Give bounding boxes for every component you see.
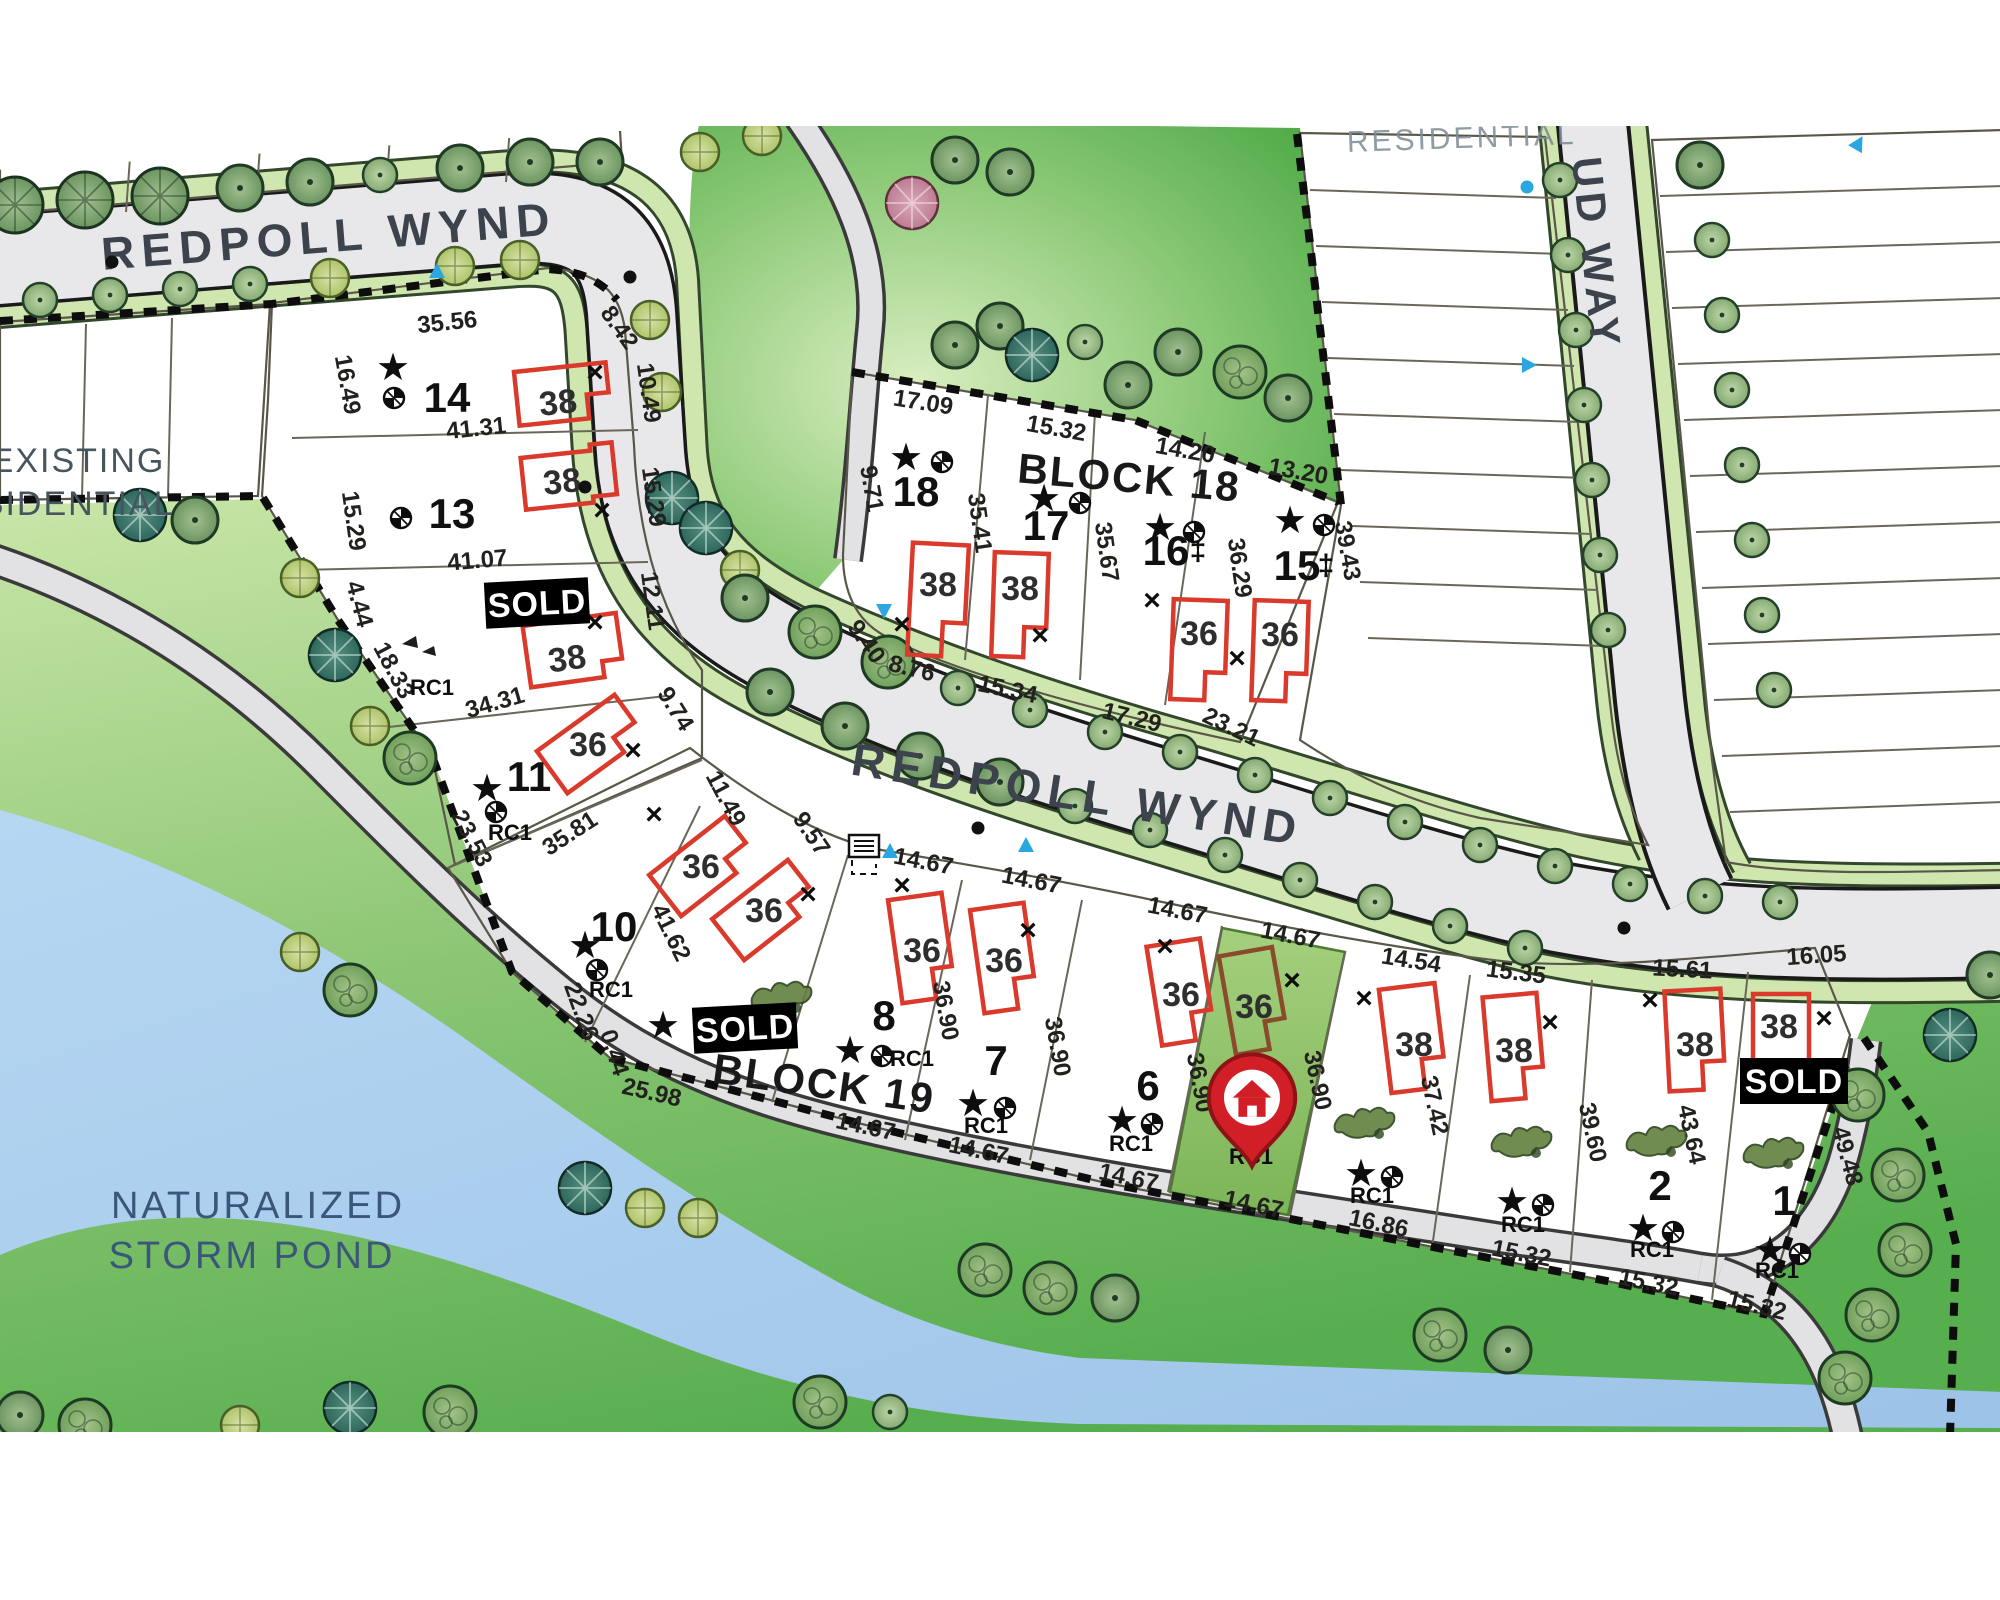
tree-icon [559, 1162, 611, 1214]
house-model: 38 [1760, 1008, 1798, 1046]
dim: 16.05 [1786, 940, 1848, 971]
house-model: 36 [1180, 615, 1218, 653]
benchmark-icon [1314, 515, 1334, 535]
tree-icon [57, 172, 113, 228]
scribble-icon [1744, 1138, 1804, 1169]
sold-badge-lot-12: SOLD [484, 577, 590, 628]
lot-number: 11 [507, 753, 551, 800]
zoning-label: RC1 [589, 977, 633, 1002]
tree-icon [722, 575, 768, 621]
lot-number: 13 [429, 490, 476, 537]
tree-icon [1879, 1224, 1931, 1276]
zoning-label: RC1 [410, 675, 454, 700]
tree-icon [507, 139, 553, 185]
lot-number: 6 [1136, 1062, 1159, 1109]
tree-icon [1006, 329, 1058, 381]
tree-icon [681, 133, 719, 171]
tree-icon [324, 1382, 376, 1434]
tree-icon [1024, 1262, 1076, 1314]
dim: 16.49 [329, 353, 366, 417]
pond-label-1: NATURALIZED [111, 1185, 405, 1227]
zoning-label: RC1 [890, 1046, 934, 1071]
dim: 35.67 [1089, 520, 1124, 583]
dim: 41.07 [446, 544, 508, 576]
tree-icon [1575, 463, 1609, 497]
tree-icon [384, 732, 436, 784]
lot-number: 15 [1274, 542, 1321, 589]
x-mark-icon: × [1815, 1002, 1833, 1035]
tree-icon [1283, 863, 1317, 897]
tree-icon [217, 165, 263, 211]
dim: 34.31 [462, 682, 527, 725]
tree-icon [941, 671, 975, 705]
tree-icon [23, 283, 57, 317]
tree-icon [1567, 388, 1601, 422]
tree-icon [1433, 909, 1467, 943]
tree-icon [1819, 1352, 1871, 1404]
zoning-label: RC1 [1109, 1131, 1153, 1156]
house-model: 36 [682, 848, 720, 886]
tree-icon [1163, 735, 1197, 769]
tree-icon [1313, 781, 1347, 815]
tree-icon [1725, 448, 1759, 482]
house-model: 38 [546, 638, 589, 681]
tree-icon [1092, 1275, 1138, 1321]
lot-number: 14 [424, 374, 471, 421]
tree-icon [747, 669, 793, 715]
tree-icon [1715, 373, 1749, 407]
star-icon: ★ [376, 347, 410, 389]
x-mark-icon: × [645, 798, 663, 831]
tree-icon [1105, 362, 1151, 408]
tree-icon [1068, 325, 1102, 359]
tree-icon [1591, 613, 1625, 647]
x-mark-icon: × [799, 878, 817, 911]
tree-icon [680, 502, 732, 554]
dim: 37.42 [1415, 1073, 1454, 1137]
zoning-label: RC1 [488, 820, 532, 845]
tree-icon [1414, 1309, 1466, 1361]
tree-icon [1688, 879, 1722, 913]
benchmark-icon [391, 508, 411, 528]
dim: 9.74 [652, 682, 700, 736]
x-mark-icon: × [1641, 984, 1659, 1017]
house-model: 38 [537, 382, 579, 424]
star-icon: ★ [646, 1005, 680, 1047]
dim: 4.44 [340, 578, 378, 631]
sold-label: SOLD [695, 1007, 795, 1050]
zoning-label: RC1 [1755, 1258, 1799, 1283]
dim: 15.32 [1024, 410, 1088, 447]
x-mark-icon: × [1019, 914, 1037, 947]
lot-number: 8 [872, 992, 895, 1039]
survey-tick-icons [402, 636, 436, 656]
house-model: 36 [745, 892, 783, 930]
house-model: 38 [1676, 1026, 1714, 1064]
house-model: 36 [1261, 616, 1299, 654]
tree-icon [1745, 598, 1779, 632]
lot-number: 2 [1648, 1162, 1671, 1209]
tree-icon [1214, 346, 1266, 398]
benchmark-icon [486, 802, 506, 822]
tree-icon [351, 707, 389, 745]
pink-tree-icon [886, 177, 938, 229]
survey-dot-icon [972, 822, 985, 835]
site-plan-map: 38 38 38 36 36 36 38 38 36 36 36 36 36 3… [0, 0, 2000, 1600]
tree-icon [1872, 1149, 1924, 1201]
zoning-label: RC1 [964, 1113, 1008, 1138]
house-model: 36 [569, 726, 607, 764]
house-model: 38 [1495, 1032, 1533, 1070]
star-icon: ★ [1027, 478, 1061, 520]
benchmark-icon [932, 452, 952, 472]
survey-dot-icon [579, 481, 592, 494]
utility-dot-icon [1521, 181, 1534, 194]
tree-icon [1846, 1289, 1898, 1341]
sold-label: SOLD [1745, 1063, 1843, 1101]
scribble-icon [1492, 1127, 1552, 1158]
tree-icon [679, 1199, 717, 1237]
lot-number: 7 [984, 1037, 1007, 1084]
scribble-icon [1335, 1108, 1395, 1139]
dim: 17.09 [891, 385, 955, 421]
house-model: 36 [985, 942, 1023, 980]
x-mark-icon: × [893, 608, 911, 641]
benchmark-icon [1070, 493, 1090, 513]
tree-icon [324, 964, 376, 1016]
star-icon: ★ [833, 1030, 867, 1072]
zoning-label: RC1 [1501, 1212, 1545, 1237]
tree-icon [233, 267, 267, 301]
house-model: 38 [541, 461, 583, 503]
tree-icon [309, 629, 361, 681]
utility-triangle-icon [1018, 837, 1034, 852]
tree-icon [281, 933, 319, 971]
x-mark-icon: × [1156, 930, 1174, 963]
dim: 36.90 [1039, 1015, 1076, 1079]
dim: 41.31 [445, 412, 508, 445]
tree-icon [1613, 867, 1647, 901]
transit-stop-icon [849, 835, 879, 874]
lot-number: 1 [1772, 1177, 1795, 1224]
house-model: 36 [1235, 988, 1273, 1026]
dim: 15.29 [336, 489, 371, 552]
x-mark-icon: × [624, 734, 642, 767]
survey-dot-icon [624, 271, 637, 284]
star-icon: ★ [889, 437, 923, 479]
tree-icon [794, 1376, 846, 1428]
house-model: 38 [919, 566, 957, 604]
x-mark-icon: × [1355, 982, 1373, 1015]
tree-icon [1735, 523, 1769, 557]
sold-label: SOLD [487, 582, 587, 625]
tree-icon [287, 159, 333, 205]
tree-icon [93, 278, 127, 312]
utility-triangle-icon [1522, 357, 1537, 373]
tree-icon [789, 606, 841, 658]
tree-icon [1265, 375, 1311, 421]
tree-icon [1677, 142, 1723, 188]
house-model: 36 [903, 932, 941, 970]
zoning-label: RC1 [1630, 1237, 1674, 1262]
survey-dot-icon [106, 256, 119, 269]
house-model: 36 [1162, 976, 1200, 1014]
sold-badge-lot-1: SOLD [1740, 1058, 1848, 1104]
tree-icon [1763, 885, 1797, 919]
dim: 35.56 [416, 306, 479, 339]
x-mark-icon: × [593, 494, 611, 527]
tree-icon [0, 177, 43, 233]
tree-icon [163, 272, 197, 306]
tree-icon [437, 145, 483, 191]
tree-icon [873, 1395, 907, 1429]
tree-icon [932, 137, 978, 183]
tree-icon [1695, 223, 1729, 257]
dim: 11.49 [700, 766, 751, 831]
benchmark-icon [1184, 522, 1204, 542]
tree-icon [0, 1392, 43, 1438]
survey-dot-icon [1618, 922, 1631, 935]
tree-icon [1238, 758, 1272, 792]
tree-icon [311, 259, 349, 297]
sold-badge-lot-9: SOLD [692, 1002, 798, 1053]
zoning-label: RC1 [1350, 1183, 1394, 1208]
tree-icon [1924, 1009, 1976, 1061]
tree-icon [1757, 673, 1791, 707]
dim: 15.61 [1652, 954, 1713, 984]
double-dagger-icon: ‡ [1318, 549, 1335, 582]
scribble-icon [1627, 1126, 1687, 1157]
tree-icon [1155, 329, 1201, 375]
x-mark-icon: × [1143, 584, 1161, 617]
tree-icon [577, 139, 623, 185]
tree-icon [424, 1386, 476, 1438]
x-mark-icon: × [893, 869, 911, 902]
x-mark-icon: × [1541, 1006, 1559, 1039]
tree-icon [1358, 885, 1392, 919]
star-icon: ★ [1273, 500, 1307, 542]
existing-residential-label-2: RESIDENTIAL [0, 485, 174, 523]
tree-icon [1705, 298, 1739, 332]
x-mark-icon: × [586, 356, 604, 389]
tree-icon [987, 149, 1033, 195]
tree-icon [1967, 952, 2000, 998]
tree-icon [281, 559, 319, 597]
tree-icon [959, 1244, 1011, 1296]
tree-icon [626, 1189, 664, 1227]
dim: 14.67 [999, 862, 1063, 900]
tree-icon [132, 168, 188, 224]
benchmark-icon [384, 388, 404, 408]
tree-icon [1538, 849, 1572, 883]
tree-icon [1583, 538, 1617, 572]
dim: 14.67 [1145, 892, 1209, 930]
dim: 36.90 [927, 979, 964, 1043]
pond-label-2: STORM POND [109, 1235, 396, 1277]
dim: 36.29 [1222, 536, 1257, 599]
tree-icon [172, 497, 218, 543]
site-plan-page: 38 38 38 36 36 36 38 38 36 36 36 36 36 3… [0, 0, 2000, 1600]
dim: 9.57 [787, 807, 836, 861]
tree-icon [1388, 805, 1422, 839]
tree-icon [1463, 828, 1497, 862]
x-mark-icon: × [1228, 642, 1246, 675]
x-mark-icon: × [1283, 964, 1301, 997]
star-icon: ★ [1143, 507, 1177, 549]
x-mark-icon: × [1031, 619, 1049, 652]
tree-icon [363, 158, 397, 192]
house-model: 38 [1001, 570, 1039, 608]
house-model: 38 [1395, 1026, 1433, 1064]
existing-residential-label-1: EXISTING [0, 442, 165, 480]
tree-icon [1485, 1327, 1531, 1373]
tree-icon [932, 322, 978, 368]
